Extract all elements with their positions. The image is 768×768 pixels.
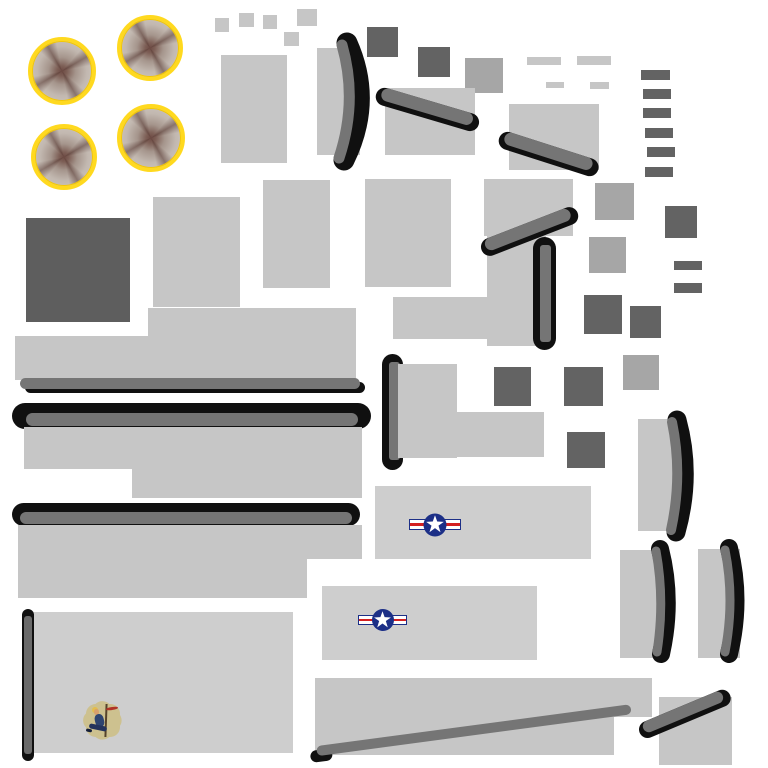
panel-rect-5 <box>263 180 330 288</box>
window-dash-3 <box>546 82 564 88</box>
engine-cowl-2 <box>117 15 183 81</box>
wing-panel-2b <box>18 558 307 598</box>
star-insignia-1-disc <box>424 513 447 536</box>
scrap-square-3 <box>263 15 277 29</box>
fuselage-side-1 <box>375 486 591 559</box>
prop-blade-1 <box>315 31 371 172</box>
ladder-bar-4 <box>645 128 673 138</box>
star-insignia-1-star-icon <box>426 515 444 533</box>
scrap-square-4 <box>297 9 317 26</box>
tail-panel-a <box>398 364 457 458</box>
dark-dash-2 <box>674 283 702 293</box>
leading-edge-bar-1-core <box>26 413 358 426</box>
dark-square-6 <box>494 367 531 406</box>
dark-square-2 <box>418 47 450 77</box>
wing-edge-strip <box>20 378 360 389</box>
dark-panel-large <box>26 218 130 322</box>
wing-panel-1a <box>24 427 362 469</box>
window-dash-4 <box>590 82 609 89</box>
dark-square-4 <box>584 295 622 334</box>
ladder-bar-5 <box>647 147 675 157</box>
panel-rect-6 <box>365 179 451 287</box>
texture-atlas-canvas <box>0 0 768 768</box>
star-insignia-1 <box>409 513 461 536</box>
wing-band-lower <box>15 336 356 380</box>
ladder-bar-2 <box>643 89 671 99</box>
dark-square-5 <box>630 306 661 338</box>
mid-square-4 <box>623 355 659 390</box>
star-insignia-1-stripe-right <box>444 523 460 526</box>
leading-edge-bar-2-core <box>20 512 352 524</box>
spar-pill-vertical-1-core <box>540 245 551 342</box>
engine-cowl-1 <box>28 37 96 105</box>
ladder-bar-6 <box>645 167 673 177</box>
dark-square-1 <box>367 27 398 57</box>
engine-cowl-3 <box>31 124 97 190</box>
dark-square-8 <box>567 432 605 468</box>
ladder-bar-1 <box>641 70 670 80</box>
panel-arm-1 <box>393 297 487 339</box>
star-insignia-2-stripe-right <box>391 619 406 621</box>
nose-edge-pill <box>22 609 34 761</box>
star-insignia-2 <box>358 609 407 631</box>
window-dash-1 <box>527 57 561 65</box>
dark-square-7 <box>564 367 603 406</box>
prop-blade-4 <box>708 535 746 666</box>
panel-rect-4 <box>153 197 240 307</box>
dark-square-3 <box>665 206 697 238</box>
engine-cowl-4 <box>117 104 185 172</box>
nose-panel <box>23 612 293 753</box>
spar-pill-vertical-1 <box>533 237 556 350</box>
window-dash-2 <box>577 56 611 65</box>
scrap-square-5 <box>284 32 299 46</box>
scrap-square-2 <box>239 13 254 27</box>
wing-band-upper <box>148 308 356 338</box>
tail-panel-b <box>457 412 544 457</box>
nose-edge-pill-core <box>24 616 32 754</box>
ladder-bar-3 <box>643 108 671 118</box>
prop-blade-3 <box>641 536 679 666</box>
star-insignia-2-disc <box>372 609 394 631</box>
mid-square-2 <box>595 183 634 220</box>
wing-panel-1b <box>132 469 362 498</box>
star-insignia-2-star-icon <box>374 611 392 629</box>
scrap-square-1 <box>215 18 229 32</box>
prop-blade-2 <box>650 406 692 544</box>
dark-dash-1 <box>674 261 702 270</box>
fuselage-side-2 <box>322 586 537 660</box>
mid-square-3 <box>589 237 626 273</box>
panel-rect-1 <box>221 55 287 163</box>
wing-panel-2a <box>18 525 362 559</box>
nose-art-pinup <box>85 702 121 739</box>
